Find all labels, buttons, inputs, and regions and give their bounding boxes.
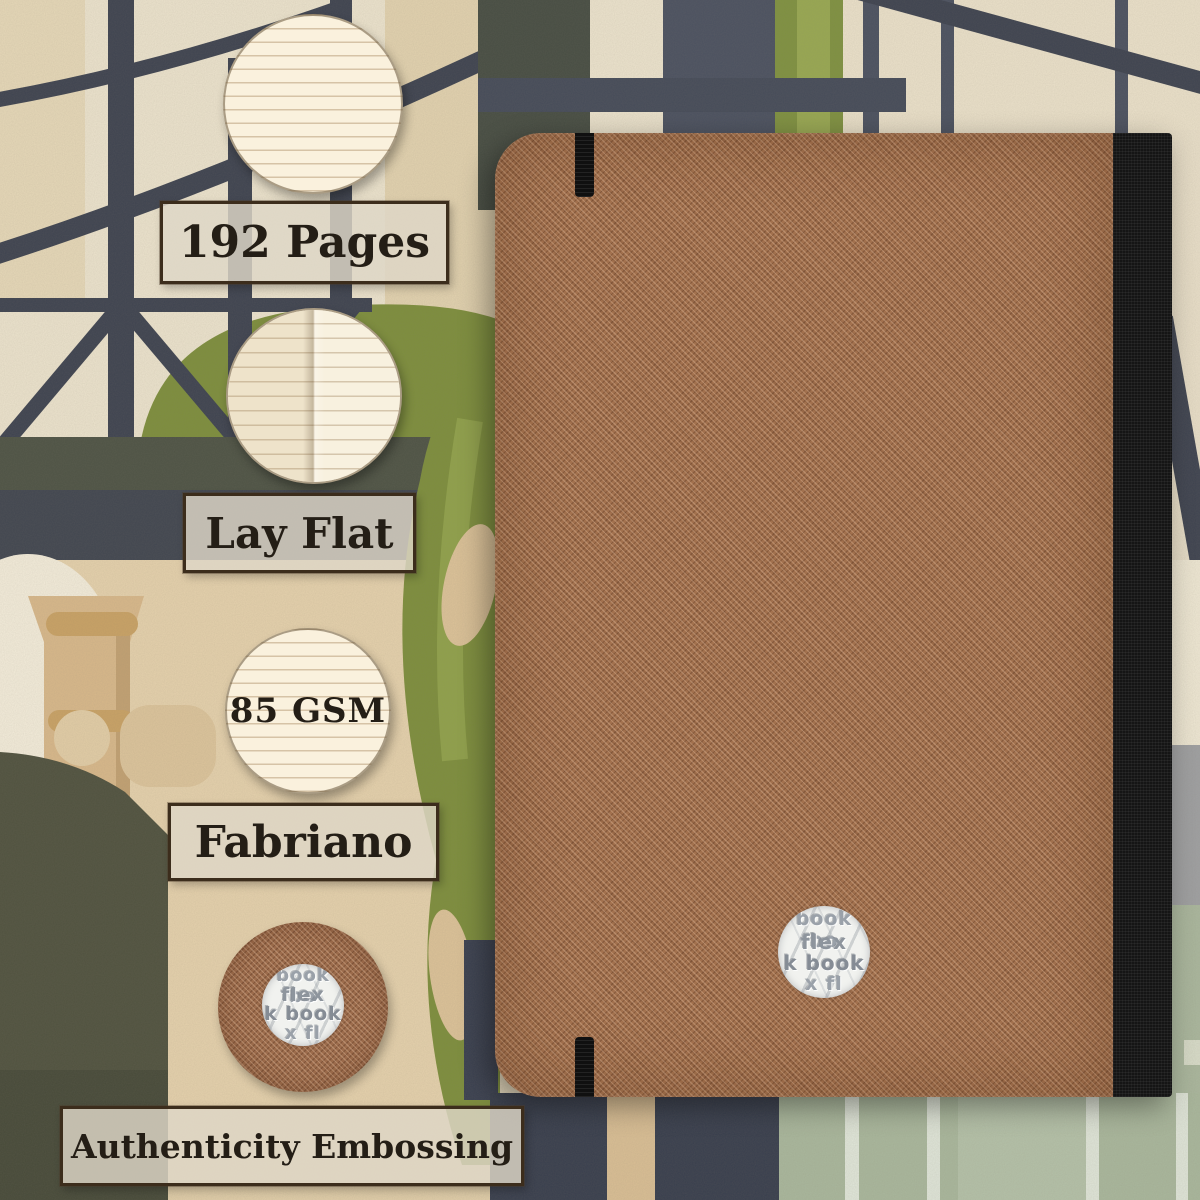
emboss-text-line: k book (778, 951, 870, 975)
flexbook-emboss-logo: book bo flex k book x fl (778, 906, 870, 998)
elastic-band-top (575, 133, 594, 197)
elastic-band-bottom (575, 1037, 594, 1097)
emboss-text-line: x fl (778, 973, 870, 995)
product-infographic: book bo flex k book x fl 192 Pages Lay F… (0, 0, 1200, 1200)
page-fold-shadow (303, 310, 325, 482)
open-page-right (314, 310, 400, 482)
callout-embossing-circle: book bo flex k book x fl (218, 922, 388, 1092)
notebook-spine (1113, 133, 1172, 1097)
emboss-sticker-zoom: book bo flex k book x fl (262, 964, 344, 1046)
feature-label-fabriano: Fabriano (168, 803, 439, 881)
emboss-text-line: k book (262, 1003, 344, 1025)
feature-label-pages-text: 192 Pages (179, 217, 430, 268)
gsm-text: 85 GSM (230, 691, 386, 731)
feature-label-pages: 192 Pages (160, 201, 449, 284)
feature-label-lay-flat-text: Lay Flat (205, 509, 393, 558)
feature-label-fabriano-text: Fabriano (195, 817, 413, 868)
feature-label-lay-flat: Lay Flat (183, 493, 416, 573)
notebook-back-cover: book bo flex k book x fl (495, 133, 1172, 1097)
callout-lined-paper-circle (223, 14, 403, 194)
feature-label-embossing: Authenticity Embossing (60, 1106, 524, 1186)
callout-lay-flat-circle (226, 308, 402, 484)
callout-gsm-circle: 85 GSM (225, 628, 391, 794)
open-page-left (228, 310, 314, 482)
emboss-text-line: x fl (262, 1023, 344, 1044)
feature-label-embossing-text: Authenticity Embossing (71, 1127, 513, 1166)
